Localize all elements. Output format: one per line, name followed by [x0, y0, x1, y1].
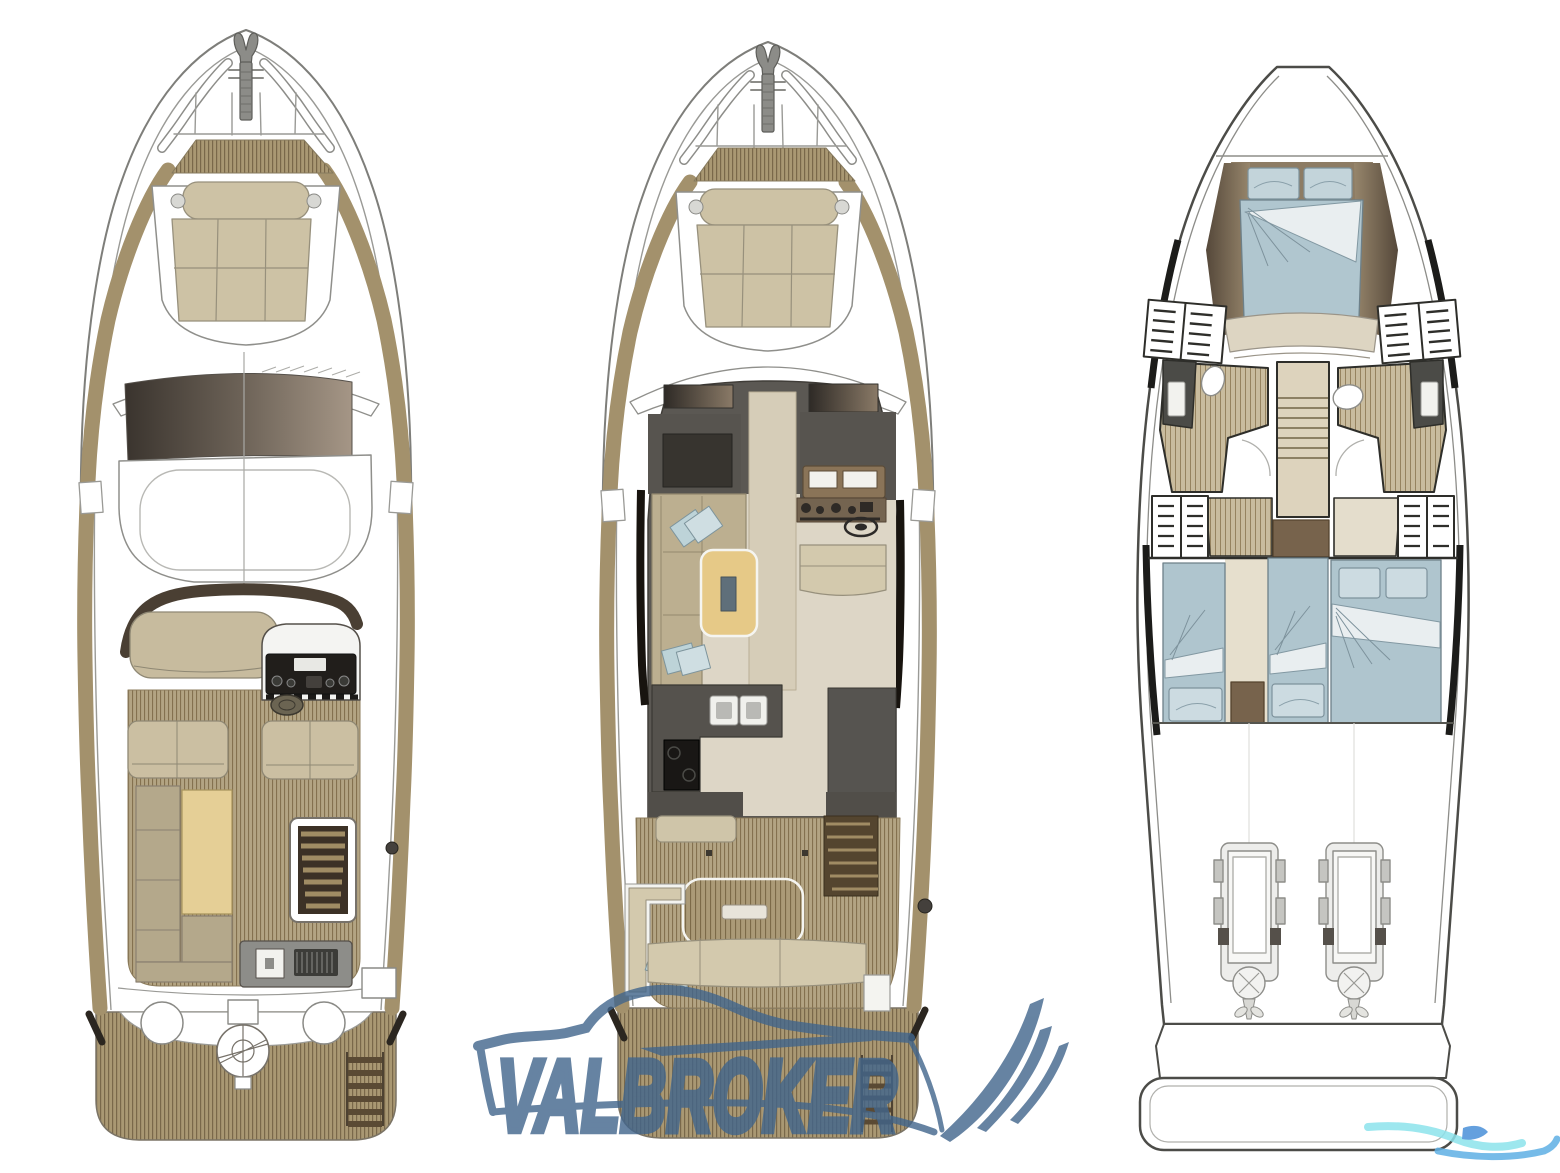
svg-text:VALBROKER: VALBROKER	[497, 1039, 897, 1153]
